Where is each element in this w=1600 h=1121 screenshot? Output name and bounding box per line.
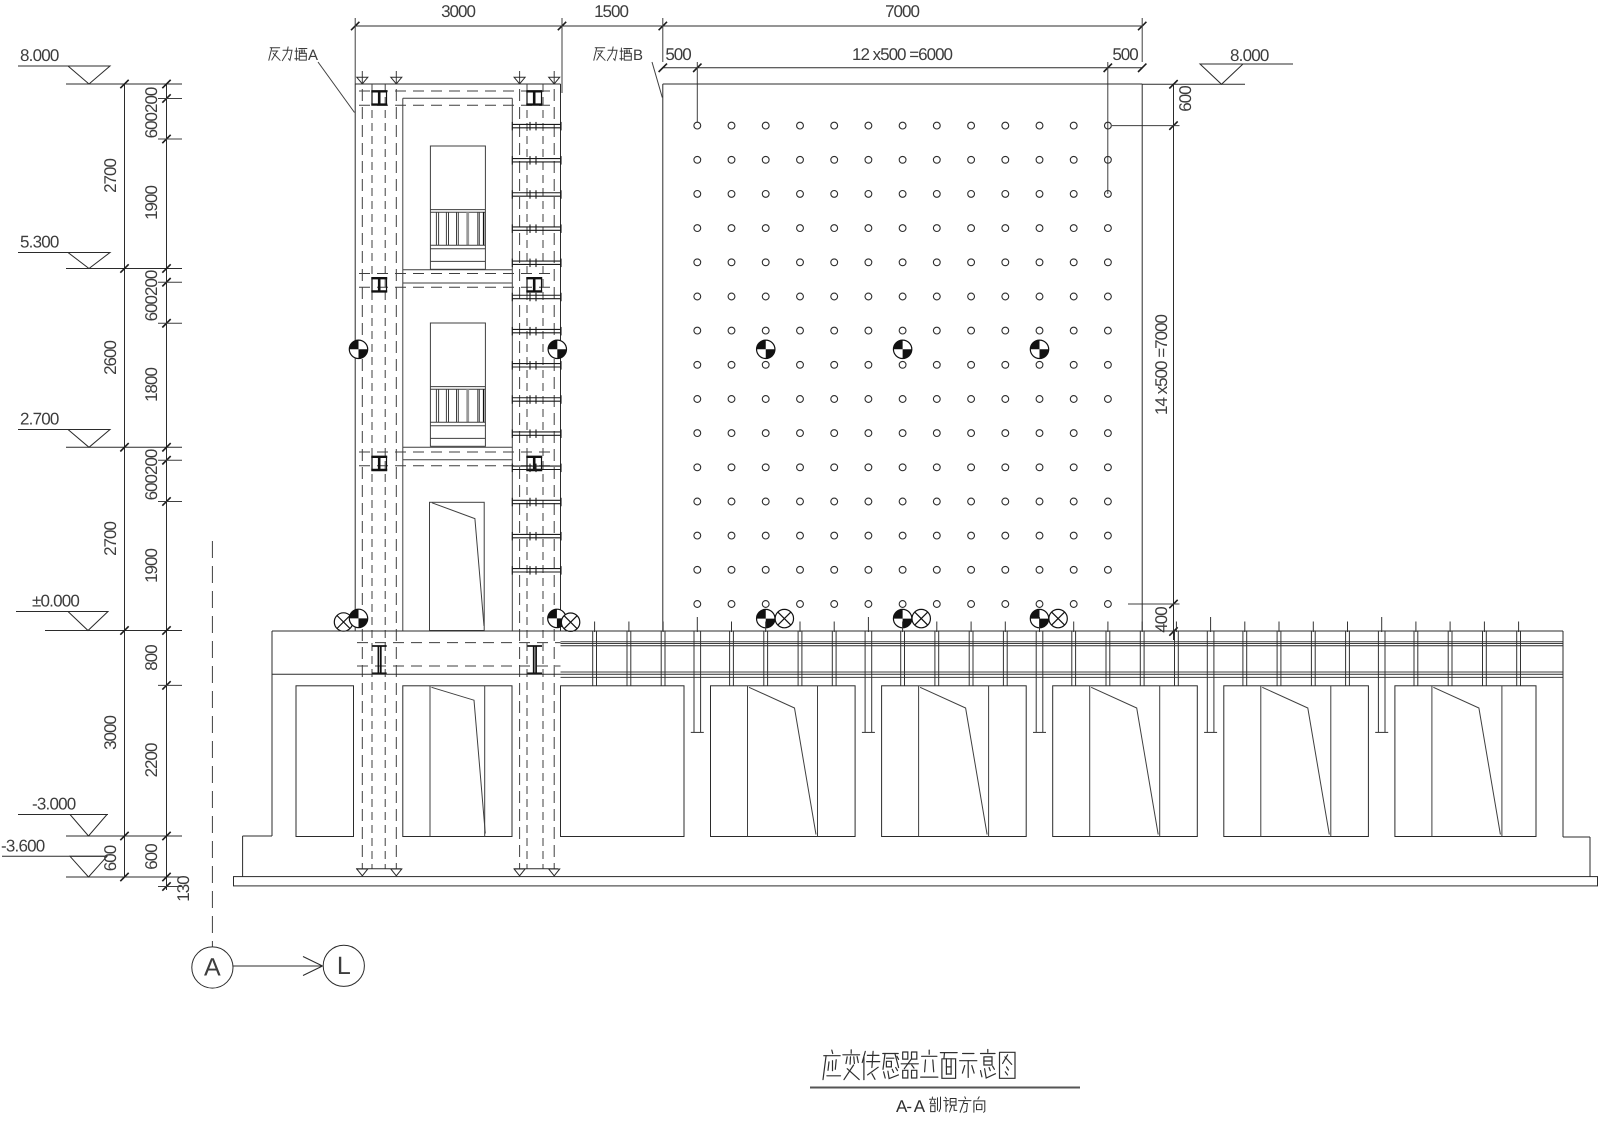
svg-text:2700: 2700 [101,159,120,193]
svg-text:400: 400 [1152,607,1171,633]
svg-text:2200: 2200 [142,743,161,777]
svg-text:600: 600 [1176,86,1195,112]
svg-text:2600: 2600 [101,341,120,375]
svg-text:3000: 3000 [441,2,475,21]
svg-text:A- A: A- A [896,1097,926,1116]
svg-text:1900: 1900 [142,549,161,583]
svg-text:600200: 600200 [142,270,161,321]
svg-text:3000: 3000 [101,716,120,750]
svg-text:±0.000: ±0.000 [32,592,79,611]
svg-text:A: A [204,954,221,982]
svg-text:-3.000: -3.000 [32,795,76,814]
svg-text:130: 130 [174,876,193,902]
svg-text:500: 500 [1112,45,1138,64]
svg-text:12 x500 =6000: 12 x500 =6000 [852,45,953,64]
svg-text:600200: 600200 [142,449,161,500]
svg-text:1800: 1800 [142,368,161,402]
svg-text:600200: 600200 [142,87,161,138]
svg-text:8.000: 8.000 [20,46,59,65]
svg-text:8.000: 8.000 [1230,46,1269,65]
svg-text:14 x500 =7000: 14 x500 =7000 [1152,314,1171,415]
svg-text:-3.600: -3.600 [1,836,45,855]
svg-text:5.300: 5.300 [20,233,59,252]
svg-text:2.700: 2.700 [20,410,59,429]
svg-text:7000: 7000 [885,2,919,21]
svg-text:B: B [633,47,643,64]
svg-text:1500: 1500 [594,2,628,21]
svg-text:A: A [308,47,318,64]
svg-text:500: 500 [665,45,691,64]
svg-text:2700: 2700 [101,522,120,556]
svg-text:800: 800 [142,645,161,671]
svg-text:600: 600 [101,845,120,871]
svg-text:L: L [337,952,351,980]
svg-text:600: 600 [142,844,161,870]
svg-text:1900: 1900 [142,186,161,220]
